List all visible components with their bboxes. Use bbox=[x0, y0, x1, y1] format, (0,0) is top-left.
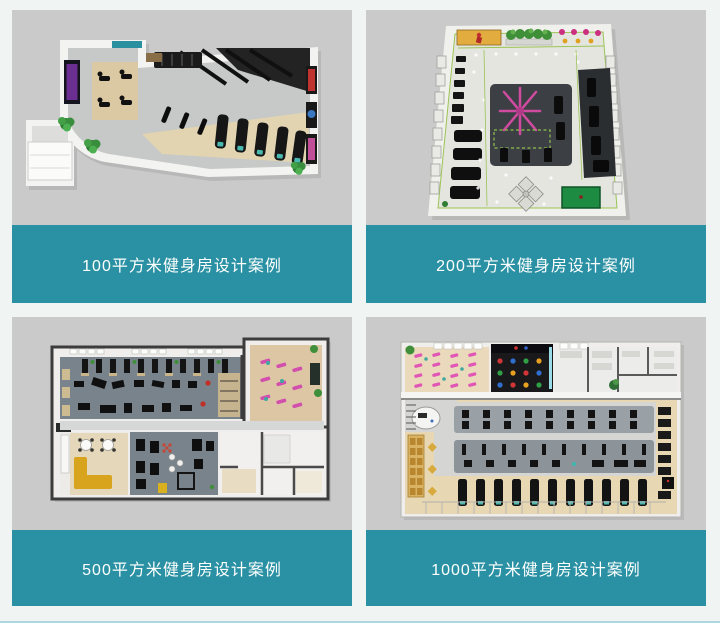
case-gallery: 100平方米健身房设计案例 bbox=[12, 10, 706, 606]
floor-plan-1000-illustration bbox=[366, 317, 706, 530]
floor-plan-500-illustration bbox=[12, 317, 352, 530]
floor-plan-thumb-1000[interactable] bbox=[366, 317, 706, 530]
floor-plan-thumb-200[interactable] bbox=[366, 10, 706, 225]
case-card-200[interactable]: 200平方米健身房设计案例 bbox=[366, 10, 706, 303]
floor-plan-100-illustration bbox=[12, 10, 352, 225]
case-card-500[interactable]: 500平方米健身房设计案例 bbox=[12, 317, 352, 606]
case-caption-100[interactable]: 100平方米健身房设计案例 bbox=[12, 225, 352, 303]
case-card-1000[interactable]: 1000平方米健身房设计案例 bbox=[366, 317, 706, 606]
case-caption-200[interactable]: 200平方米健身房设计案例 bbox=[366, 225, 706, 303]
floor-plan-thumb-500[interactable] bbox=[12, 317, 352, 530]
case-caption-1000[interactable]: 1000平方米健身房设计案例 bbox=[366, 530, 706, 606]
case-caption-500[interactable]: 500平方米健身房设计案例 bbox=[12, 530, 352, 606]
case-card-100[interactable]: 100平方米健身房设计案例 bbox=[12, 10, 352, 303]
floor-plan-thumb-100[interactable] bbox=[12, 10, 352, 225]
floor-plan-200-illustration bbox=[366, 10, 706, 225]
